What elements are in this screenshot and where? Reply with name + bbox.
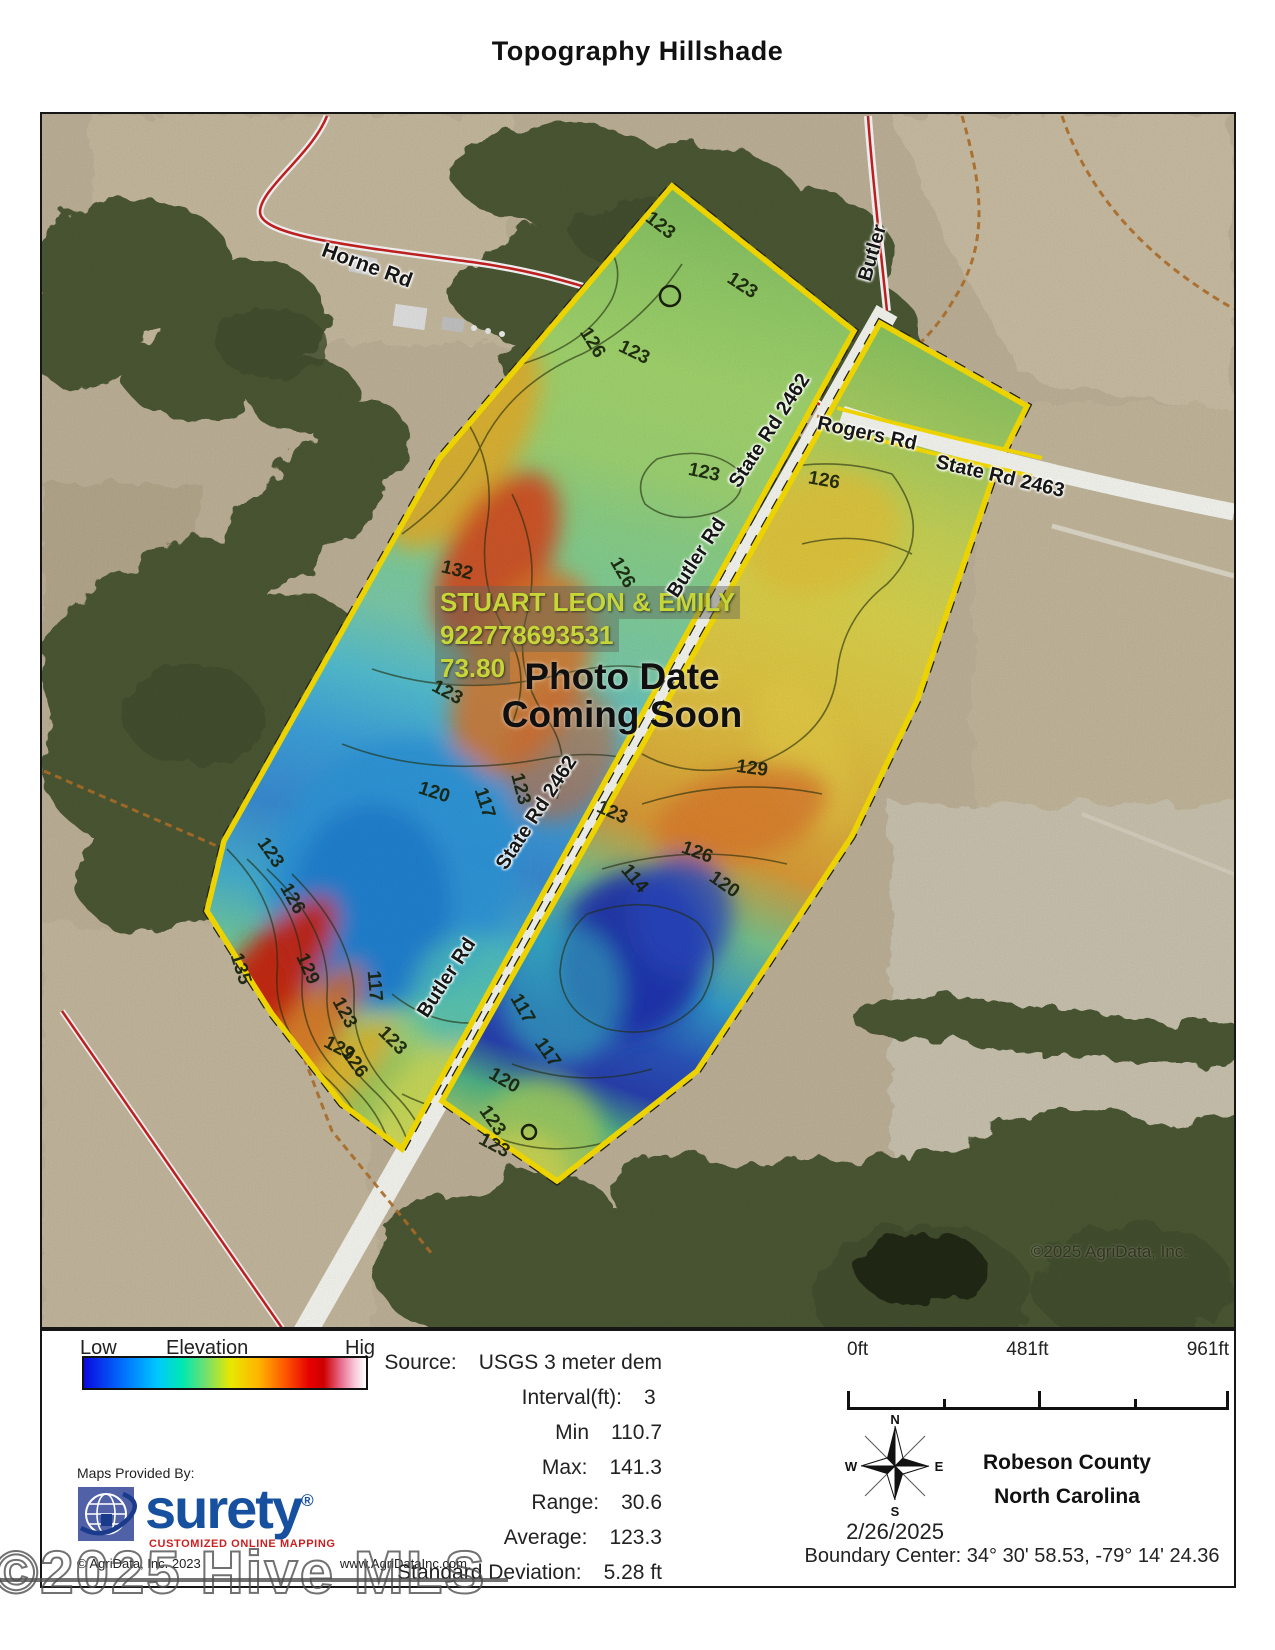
map-label-layer: STUART LEON & EMILY 922778693531 73.80 P… [42, 114, 1234, 1327]
stat-row: Max:141.3 [102, 1456, 662, 1480]
contour-label: 123 [641, 208, 680, 245]
contour-label: 135 [225, 951, 256, 988]
stat-value: 123.3 [587, 1526, 662, 1550]
photo-notice-line1: Photo Date [442, 658, 802, 696]
road-label: State Rd 2462 [492, 752, 583, 875]
contour-label: 123 [723, 268, 762, 304]
contour-label: 123 [615, 336, 653, 370]
scale-labels: 0ft481ft961ft [847, 1339, 1229, 1361]
contour-label: 123 [593, 797, 631, 830]
compass-s: S [891, 1504, 900, 1519]
road-label: Rogers Rd [815, 412, 919, 456]
road-label: Butler [854, 222, 892, 284]
boundary-center: Boundary Center: 34° 30' 58.53, -79° 14'… [772, 1545, 1252, 1568]
scale-bar [847, 1391, 1229, 1410]
road-label: State Rd 2463 [934, 451, 1067, 503]
scale-label: 0ft [847, 1339, 868, 1361]
contour-label: 123 [373, 1022, 411, 1060]
stat-label: Range: [102, 1491, 599, 1515]
scale-label: 481ft [1006, 1339, 1048, 1361]
contour-label: 126 [806, 467, 841, 494]
scale-bar-block: 0ft481ft961ft [847, 1339, 1229, 1409]
stat-row: Range:30.6 [102, 1491, 662, 1515]
stat-value: 141.3 [587, 1456, 662, 1480]
stat-row: Interval(ft):3 [102, 1386, 662, 1410]
stat-value: USGS 3 meter dem [457, 1351, 662, 1375]
photo-date-notice: Photo Date Coming Soon [442, 658, 802, 734]
contour-label: 114 [616, 860, 653, 898]
contour-label: 120 [416, 778, 453, 809]
contour-label: 120 [705, 867, 744, 903]
photo-notice-line2: Coming Soon [442, 696, 802, 734]
stat-value: 3 [622, 1386, 656, 1410]
road-label: Horne Rd [318, 239, 415, 294]
scale-label: 961ft [1187, 1339, 1229, 1361]
stat-row: Min110.7 [102, 1421, 662, 1445]
contour-label: 132 [439, 556, 475, 585]
contour-label: 117 [505, 990, 539, 1028]
compass-n: N [890, 1413, 899, 1427]
page: Topography Hillshade [0, 0, 1275, 1650]
stat-label: Min [102, 1421, 589, 1445]
compass-rose-icon: N S E W [842, 1413, 948, 1519]
stat-label: Interval(ft): [102, 1386, 622, 1410]
compass-e: E [935, 1459, 944, 1474]
contour-label: 117 [469, 785, 499, 821]
contour-label: 123 [505, 771, 534, 807]
contour-label: 123 [475, 1129, 513, 1163]
stat-value: 110.7 [589, 1421, 662, 1445]
contour-label: 126 [574, 324, 609, 363]
contour-label: 126 [275, 880, 310, 918]
contour-label: 123 [686, 459, 722, 487]
contour-label: 120 [485, 1064, 523, 1099]
map-canvas: STUART LEON & EMILY 922778693531 73.80 P… [40, 112, 1236, 1329]
page-title: Topography Hillshade [0, 36, 1275, 67]
contour-label: 123 [252, 834, 288, 873]
contour-label: 117 [529, 1034, 565, 1072]
stat-row: Source:USGS 3 meter dem [102, 1351, 662, 1375]
stat-value: 30.6 [599, 1491, 662, 1515]
road-label: State Rd 2462 [725, 370, 816, 493]
contour-label: 129 [735, 756, 769, 782]
contour-label: 123 [327, 994, 361, 1032]
stat-label: Max: [102, 1456, 587, 1480]
watermark: ©2025 Hive MLS [0, 1538, 486, 1607]
stat-label: Source: [102, 1351, 457, 1375]
compass-w: W [845, 1459, 858, 1474]
road-label: Butler Rd [413, 934, 481, 1022]
owner-id: 922778693531 [435, 619, 619, 652]
county-name: Robeson County [962, 1451, 1172, 1475]
map-date: 2/26/2025 [830, 1519, 960, 1545]
owner-name: STUART LEON & EMILY [435, 586, 740, 619]
state-name: North Carolina [962, 1485, 1172, 1509]
stat-value: 5.28 ft [582, 1561, 662, 1585]
contour-label: 126 [678, 837, 715, 869]
contour-label: 129 [291, 950, 324, 988]
map-credit: ©2025 AgriData, Inc. [1031, 1242, 1188, 1262]
contour-label: 117 [362, 970, 387, 1002]
